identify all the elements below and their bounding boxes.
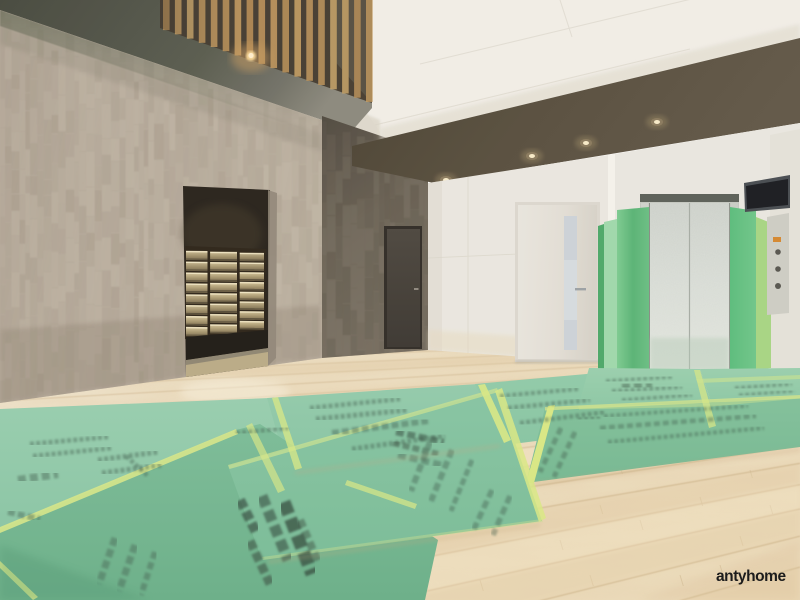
svg-text:antyhome: antyhome (716, 568, 786, 585)
